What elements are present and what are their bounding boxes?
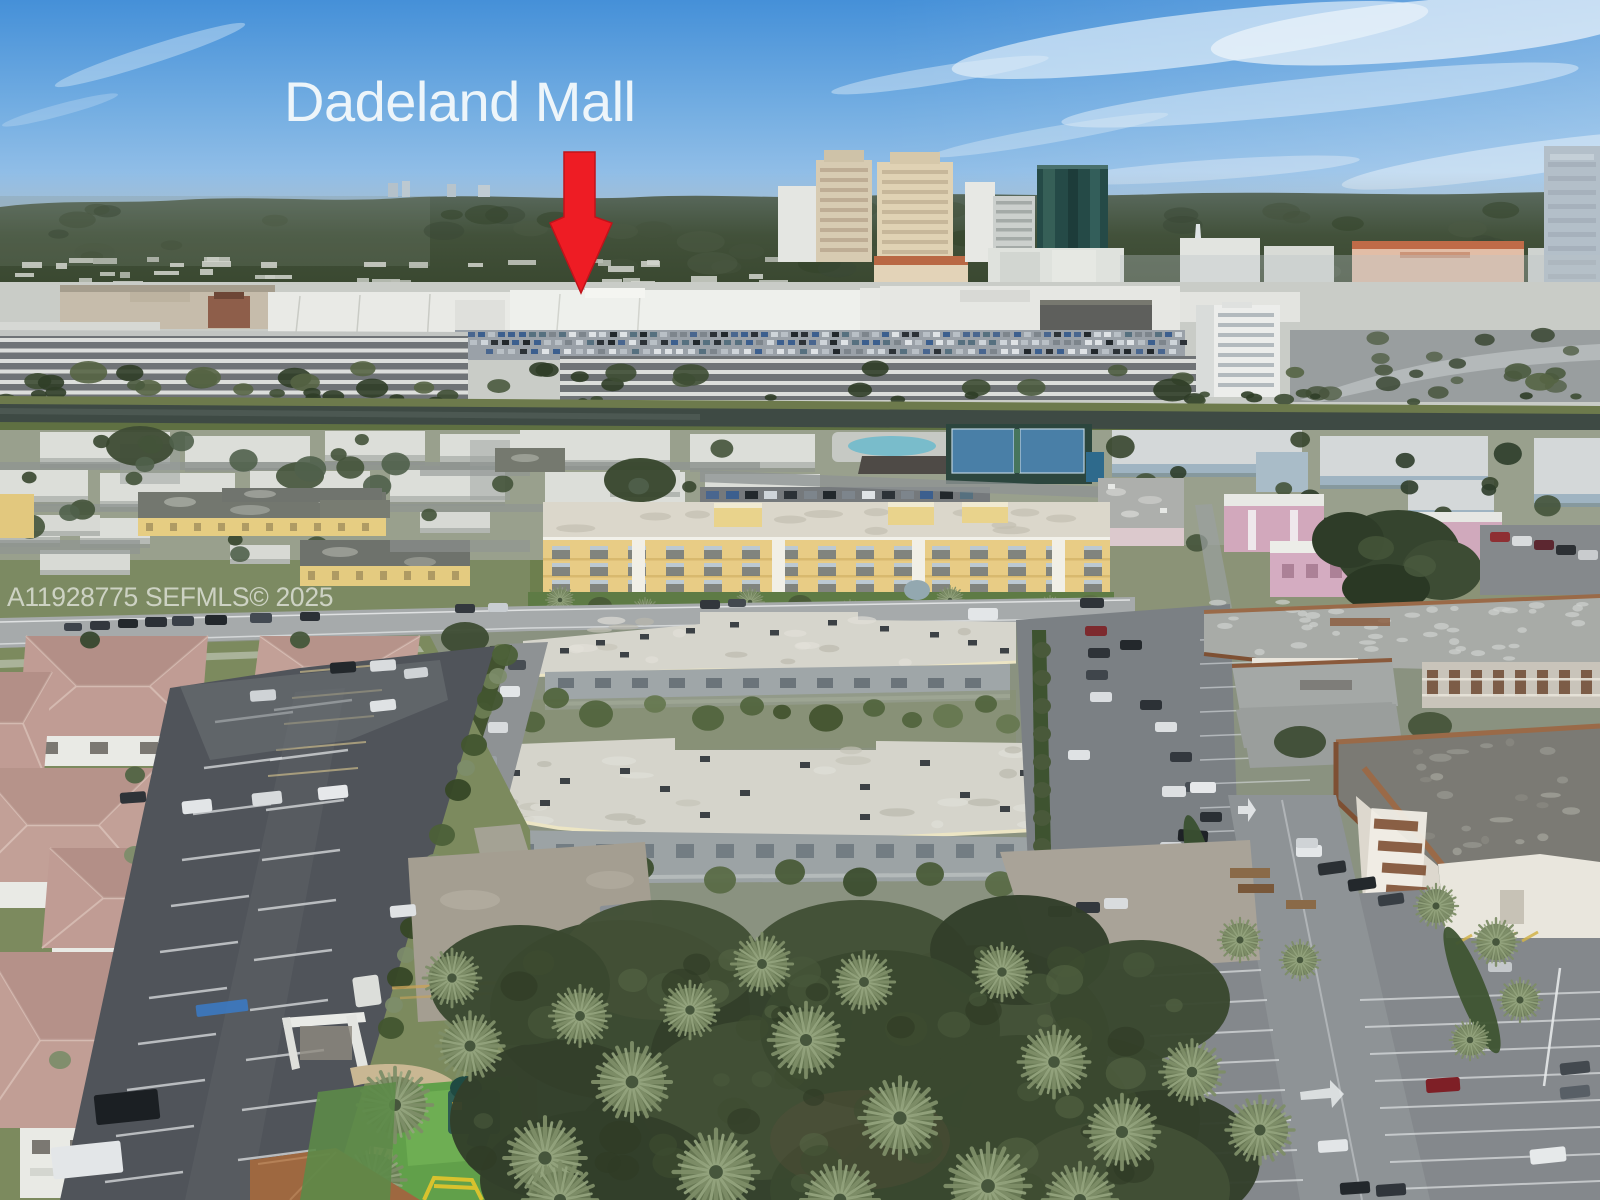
svg-text:A11928775 SEFMLS© 2025: A11928775 SEFMLS© 2025 <box>7 582 333 612</box>
svg-text:Dadeland Mall: Dadeland Mall <box>284 70 635 133</box>
